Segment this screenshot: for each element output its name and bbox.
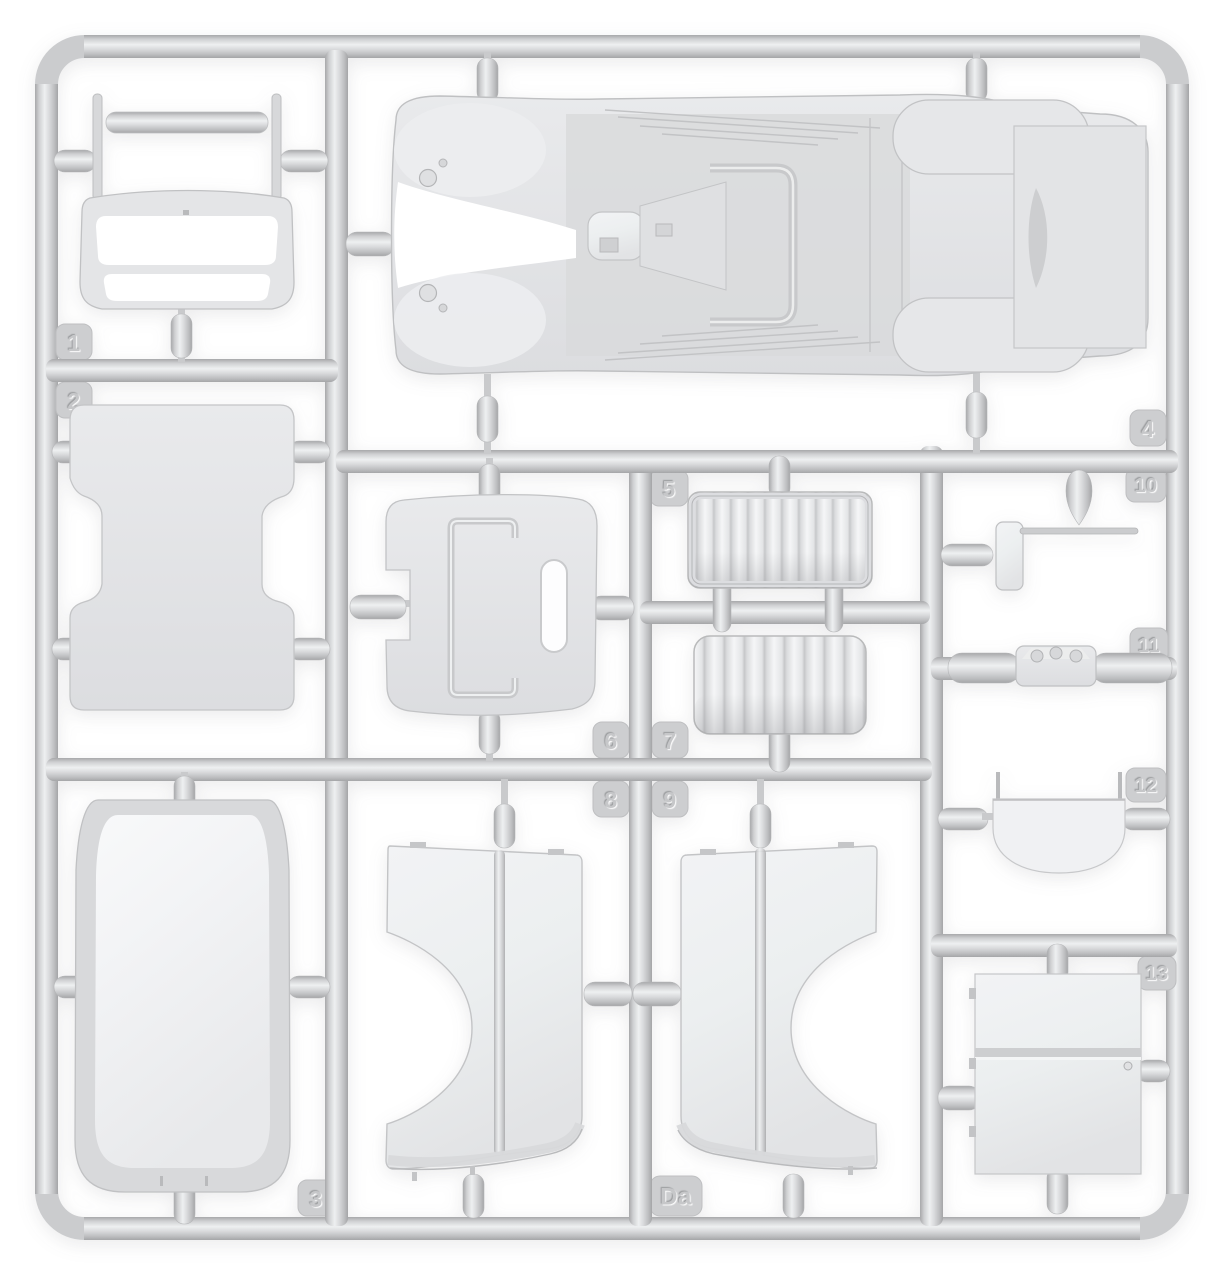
headlight-bucket-left: [420, 170, 437, 187]
runner-vertical-center: [629, 452, 652, 1226]
part-tag-8: 8: [593, 781, 629, 817]
sprue-photo: 1 2 4 10 5 6 7 8: [0, 0, 1224, 1272]
part-tag-10: 10: [1126, 468, 1166, 502]
part-tag-da: Da: [650, 1176, 702, 1216]
dashboard-dial: [1070, 650, 1082, 662]
part-seat-base-panel: [993, 772, 1125, 873]
runner-vertical-right: [920, 446, 943, 1226]
frame-right-bar: [1166, 84, 1189, 1194]
svg-text:9: 9: [663, 787, 676, 813]
part-side-panel-left: [386, 842, 582, 1181]
side-panel-seam: [494, 850, 505, 1155]
part-seat-cushion-upper: [688, 492, 872, 588]
svg-text:13: 13: [1145, 963, 1168, 985]
svg-text:5: 5: [662, 476, 675, 502]
part-tag-4: 4: [1130, 410, 1166, 446]
runner-h-seat-divider: [640, 601, 930, 624]
part-tag-13: 13: [1138, 956, 1176, 990]
frame-top-bar: [84, 35, 1140, 58]
dashboard-dial: [1050, 647, 1062, 659]
part-seat-cushion-lower: [694, 636, 866, 734]
svg-text:12: 12: [1134, 775, 1157, 797]
svg-text:1: 1: [67, 330, 80, 356]
side-panel-seam: [755, 848, 766, 1156]
windshield-opening-upper: [96, 216, 278, 265]
part-tag-9: 9: [652, 781, 688, 817]
part-side-panel-right: [678, 842, 877, 1175]
svg-text:4: 4: [1141, 416, 1154, 442]
sprue-svg: 1 2 4 10 5 6 7 8: [0, 0, 1224, 1272]
runner-h-main: [336, 450, 1178, 473]
part-tag-12: 12: [1126, 768, 1166, 802]
dashboard-dial: [1031, 650, 1043, 662]
headlight-bucket-right: [420, 285, 437, 302]
runner-vertical-left: [325, 50, 348, 1226]
runner-h-left-upper: [46, 359, 338, 382]
part-notched-roof-panel: [70, 405, 294, 710]
transmission-tunnel: [588, 212, 644, 260]
svg-text:8: 8: [604, 787, 617, 813]
svg-text:Da: Da: [660, 1184, 692, 1211]
part-dashboard: [1016, 646, 1096, 686]
part-tag-5: 5: [650, 470, 688, 506]
svg-text:6: 6: [604, 728, 617, 754]
windshield-opening-lower: [104, 274, 270, 301]
part-tag-7: 7: [652, 722, 688, 758]
part-folded-panel: [969, 974, 1141, 1174]
svg-text:7: 7: [663, 728, 676, 754]
part-bulkhead-panel: [386, 495, 597, 716]
windshield-crossbar: [106, 112, 268, 133]
part-steering-rod: [996, 522, 1138, 590]
part-car-body-shell: [392, 94, 1149, 375]
svg-text:3: 3: [309, 1186, 322, 1212]
frame-left-bar: [35, 84, 58, 1194]
frame-bottom-bar: [84, 1217, 1140, 1240]
part-windshield-frame: [80, 94, 294, 309]
svg-text:10: 10: [1134, 475, 1157, 497]
part-tag-1: 1: [56, 324, 92, 360]
part-roof-panel: [75, 800, 290, 1192]
roof-panel-inner: [95, 815, 270, 1168]
part-tag-6: 6: [593, 722, 629, 758]
bulkhead-slot: [541, 560, 567, 652]
